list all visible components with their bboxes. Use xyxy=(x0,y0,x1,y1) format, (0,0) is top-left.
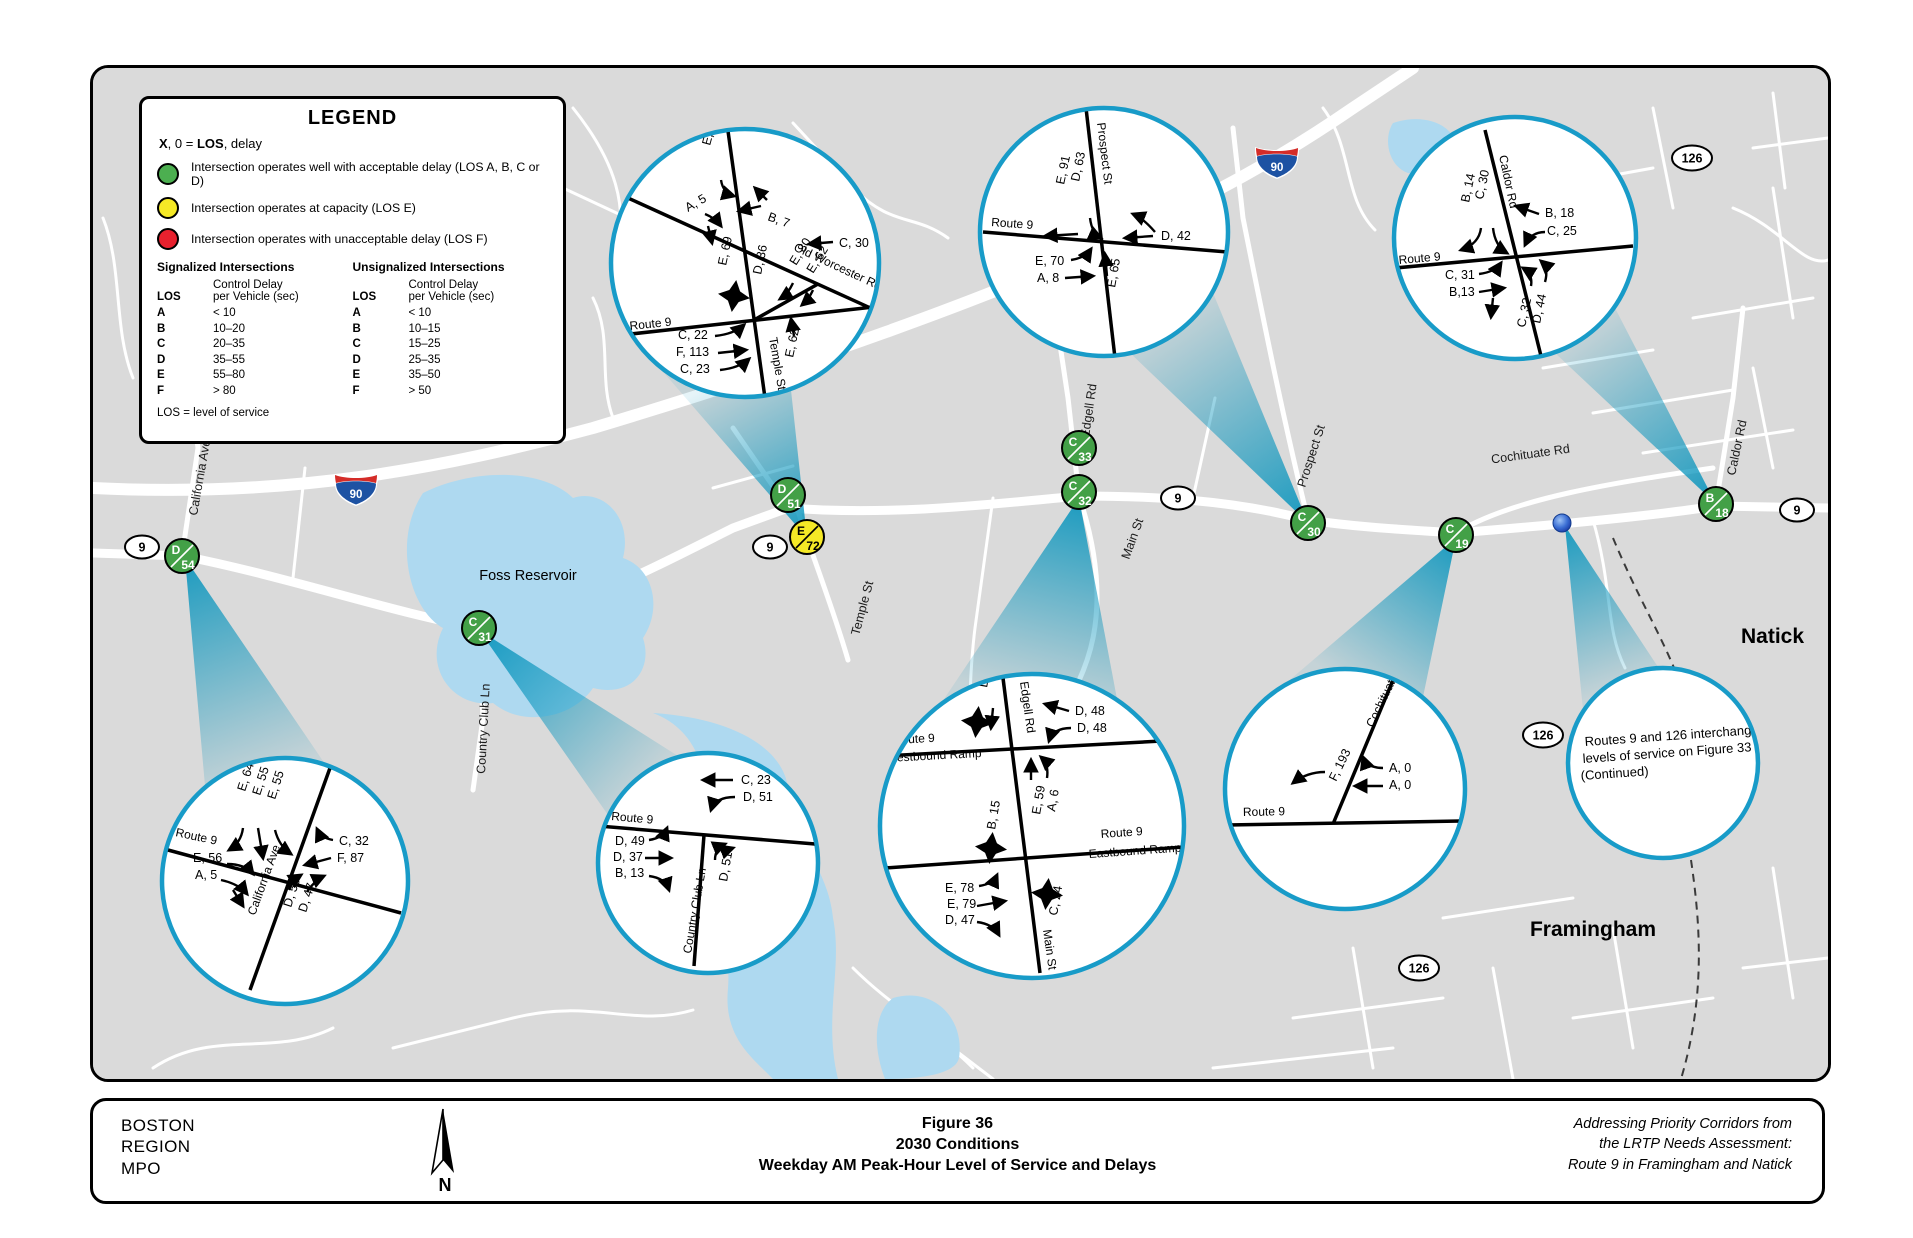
figure-subtitle: 2030 Conditions xyxy=(93,1134,1822,1155)
table-row: E55–80 xyxy=(157,368,353,384)
route-126-shield: 126 xyxy=(1672,146,1712,171)
table-row: F> 80 xyxy=(157,384,353,400)
los-label: C, 31 xyxy=(1445,268,1475,282)
los-column-header: LOS xyxy=(157,291,213,303)
table-row: D25–35 xyxy=(353,353,549,369)
table-row: E35–50 xyxy=(353,368,549,384)
svg-text:9: 9 xyxy=(767,541,774,555)
legend-key-symbol: X xyxy=(159,136,168,151)
los-label: F, 87 xyxy=(337,851,364,865)
los-label: D, 47 xyxy=(945,913,975,927)
los-label: F, 113 xyxy=(676,345,709,359)
route-9-shield: 9 xyxy=(753,536,787,559)
los-label: E, 79 xyxy=(947,897,976,911)
svg-text:32: 32 xyxy=(1078,494,1092,508)
svg-text:30: 30 xyxy=(1307,525,1321,539)
los-red-dot-icon xyxy=(157,228,179,250)
legend-key-mid: , 0 = xyxy=(168,136,197,151)
callout-caldor: Caldor Rd Route 9 C, 30 B, 14 B, 18 C, 2… xyxy=(1394,117,1636,359)
callout-country-club: Route 9 Country Club Ln C, 23 D, 51 D, 4… xyxy=(598,753,818,973)
los-label: B,13 xyxy=(1449,285,1475,299)
route-126-shield: 126 xyxy=(1523,723,1563,748)
los-label: D, 51 xyxy=(743,790,773,804)
legend-item-capacity: Intersection operates at capacity (LOS E… xyxy=(157,197,548,219)
svg-text:C: C xyxy=(1446,522,1455,536)
legend-key: X, 0 = LOS, delay xyxy=(159,136,548,151)
town-label-natick: Natick xyxy=(1741,625,1804,648)
svg-text:51: 51 xyxy=(787,497,801,511)
water-label: Foss Reservoir xyxy=(479,568,577,584)
callout-prospect: Prospect St Route 9 D, 63 E, 91 D, 42 E,… xyxy=(980,108,1228,358)
figure-number: Figure 36 xyxy=(93,1113,1822,1134)
los-label: D, 49 xyxy=(615,834,645,848)
legend: LEGEND X, 0 = LOS, delay Intersection op… xyxy=(139,96,566,444)
route-9-shield: 9 xyxy=(1161,487,1195,510)
los-label: C, 23 xyxy=(741,773,771,787)
svg-text:E: E xyxy=(797,524,805,538)
legend-item-label: Intersection operates with unacceptable … xyxy=(191,232,488,246)
svg-text:126: 126 xyxy=(1533,729,1554,743)
figure-title: Figure 36 2030 Conditions Weekday AM Pea… xyxy=(93,1113,1822,1176)
los-label: C, 22 xyxy=(678,328,708,342)
los-label: D, 42 xyxy=(1161,229,1191,243)
svg-text:C: C xyxy=(1298,510,1307,524)
route-9-shield: 9 xyxy=(1780,499,1814,522)
los-badge-c30: C30 xyxy=(1291,506,1325,540)
svg-text:9: 9 xyxy=(1794,504,1801,518)
svg-text:31: 31 xyxy=(478,630,492,644)
svg-text:B: B xyxy=(1706,491,1715,505)
los-label: C, 30 xyxy=(839,236,869,250)
los-badge-c33: C33 xyxy=(1062,431,1096,465)
signalized-table: Signalized Intersections LOS Control Del… xyxy=(157,260,353,399)
table-row: F> 50 xyxy=(353,384,549,400)
table-row: B10–20 xyxy=(157,322,353,338)
svg-text:C: C xyxy=(1069,435,1078,449)
legend-key-term: LOS xyxy=(197,136,224,151)
los-badge-d51: D51 xyxy=(771,478,805,512)
legend-footnote: LOS = level of service xyxy=(157,407,548,419)
report-credit: Addressing Priority Corridors from the L… xyxy=(1568,1114,1792,1175)
road-label: Route 9 xyxy=(991,215,1034,232)
los-badge-c32: C32 xyxy=(1062,475,1096,509)
signal-location-dot xyxy=(1553,514,1571,532)
los-badge-d54: D54 xyxy=(165,539,199,573)
legend-item-acceptable: Intersection operates well with acceptab… xyxy=(157,160,548,188)
los-label: E, 70 xyxy=(1035,254,1064,268)
svg-text:54: 54 xyxy=(181,558,195,572)
legend-item-label: Intersection operates at capacity (LOS E… xyxy=(191,201,416,215)
legend-item-unacceptable: Intersection operates with unacceptable … xyxy=(157,228,548,250)
route-126-shield: 126 xyxy=(1399,956,1439,981)
los-label: A, 0 xyxy=(1389,778,1411,792)
road-label: Route 9 xyxy=(1243,804,1286,819)
signalized-heading: Signalized Intersections xyxy=(157,260,353,274)
route-9-shield: 9 xyxy=(125,536,159,559)
los-label: C, 23 xyxy=(680,362,710,376)
los-badge-c19: C19 xyxy=(1439,518,1473,552)
table-row: A< 10 xyxy=(157,306,353,322)
table-row: D35–55 xyxy=(157,353,353,369)
los-label: D, 37 xyxy=(613,850,643,864)
los-yellow-dot-icon xyxy=(157,197,179,219)
los-label: C, 32 xyxy=(339,834,369,848)
svg-text:9: 9 xyxy=(139,541,146,555)
los-green-dot-icon xyxy=(157,163,179,185)
svg-text:126: 126 xyxy=(1409,962,1430,976)
delay-column-header: Control Delayper Vehicle (sec) xyxy=(213,279,299,303)
svg-text:9: 9 xyxy=(1175,492,1182,506)
los-badge-e72: E72 xyxy=(790,520,824,554)
los-label: A, 8 xyxy=(1037,271,1059,285)
los-label: B, 18 xyxy=(1545,206,1574,220)
delay-column-header: Control Delayper Vehicle (sec) xyxy=(409,279,495,303)
town-label-framingham: Framingham xyxy=(1530,918,1656,941)
los-badge-b18: B18 xyxy=(1699,487,1733,521)
los-column-header: LOS xyxy=(353,291,409,303)
los-label: E, 56 xyxy=(193,851,222,865)
footer-panel: BOSTON REGION MPO N Figure 36 2030 Condi… xyxy=(90,1098,1825,1204)
legend-tables: Signalized Intersections LOS Control Del… xyxy=(157,260,548,399)
svg-text:72: 72 xyxy=(806,539,820,553)
svg-text:C: C xyxy=(1069,479,1078,493)
unsignalized-table: Unsignalized Intersections LOS Control D… xyxy=(353,260,549,399)
callout-california: Route 9 California Ave E, 64 E, 55 E, 55… xyxy=(162,758,408,1004)
legend-title: LEGEND xyxy=(157,107,548,130)
los-label: D, 48 xyxy=(1077,721,1107,735)
svg-text:D: D xyxy=(172,543,181,557)
figure-page: Foss Reservoir California Ave Country Cl… xyxy=(0,0,1913,1238)
road-label: Route 9 xyxy=(1100,824,1143,841)
los-label: B, 13 xyxy=(615,866,644,880)
svg-text:33: 33 xyxy=(1078,450,1092,464)
map-panel: Foss Reservoir California Ave Country Cl… xyxy=(90,65,1831,1082)
table-row: C20–35 xyxy=(157,337,353,353)
los-badge-c31: C31 xyxy=(462,611,496,645)
svg-text:90: 90 xyxy=(1271,162,1284,174)
unsignalized-heading: Unsignalized Intersections xyxy=(353,260,549,274)
svg-text:C: C xyxy=(469,615,478,629)
svg-text:126: 126 xyxy=(1682,152,1703,166)
los-label: D, 48 xyxy=(1075,704,1105,718)
los-label: A, 5 xyxy=(195,868,217,882)
table-row: B10–15 xyxy=(353,322,549,338)
table-row: C15–25 xyxy=(353,337,549,353)
los-label: A, 0 xyxy=(1389,761,1411,775)
los-label: E, 78 xyxy=(945,881,974,895)
svg-text:18: 18 xyxy=(1715,506,1729,520)
table-row: A< 10 xyxy=(353,306,549,322)
callout-note: Routes 9 and 126 interchange levels of s… xyxy=(1568,668,1759,858)
svg-text:90: 90 xyxy=(350,489,363,501)
los-label: C, 25 xyxy=(1547,224,1577,238)
legend-item-label: Intersection operates well with acceptab… xyxy=(191,160,548,188)
figure-description: Weekday AM Peak-Hour Level of Service an… xyxy=(93,1155,1822,1176)
svg-text:19: 19 xyxy=(1455,537,1469,551)
svg-text:D: D xyxy=(778,482,787,496)
legend-key-rest: , delay xyxy=(224,136,262,151)
svg-text:N: N xyxy=(439,1175,452,1195)
